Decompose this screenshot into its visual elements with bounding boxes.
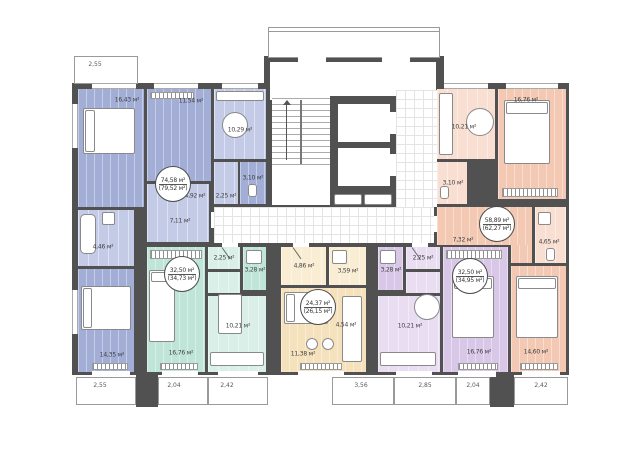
room-area-label: 3,28 м²: [381, 267, 402, 274]
room-area-label: 7,32 м²: [453, 237, 474, 244]
balcony-pillar: [136, 375, 158, 407]
window: [72, 290, 78, 334]
balcony-door: [458, 371, 496, 377]
washing-machine: [538, 212, 551, 225]
apt-purple-total-badge[interactable]: 32,50 м² (34,95 м²): [452, 258, 488, 294]
apt-green-door: [222, 243, 238, 247]
room-area-label: 10,21 м²: [398, 323, 422, 330]
room-area-label: 11,38 м²: [291, 351, 315, 358]
porch-railing: [269, 31, 439, 32]
area-gross: (34,95 м²): [456, 276, 485, 284]
shower: [332, 250, 347, 264]
stool: [306, 338, 318, 350]
washing-machine: [102, 212, 115, 225]
room-area-label: 10,29 м²: [228, 127, 252, 134]
apt-purple-door: [412, 243, 428, 247]
room-area-label: 2,25 м²: [413, 255, 434, 262]
bed-pillow: [518, 278, 556, 289]
balcony-door: [396, 371, 432, 377]
room-area-label: 7,11 м²: [170, 218, 191, 225]
lobby-door: [364, 194, 392, 205]
area-net: 58,89 м²: [485, 217, 509, 224]
dimension-label: 2,42: [534, 382, 547, 389]
room-area-label: 3,10 м²: [243, 175, 264, 182]
radiator: [300, 363, 342, 370]
stair-landing: [272, 166, 330, 205]
kitchen-counter: [216, 91, 264, 101]
balcony-door: [162, 371, 198, 377]
balcony-door: [92, 371, 130, 377]
room-area-label: 4,65 м²: [539, 239, 560, 246]
toilet: [248, 184, 257, 197]
apt-salmon-door: [434, 216, 437, 232]
apt-cream-door: [293, 243, 309, 247]
balcony-door: [522, 371, 560, 377]
apt-blue-door: [211, 212, 214, 228]
toilet: [440, 186, 449, 199]
area-net: 32,50 м²: [170, 267, 194, 274]
area-gross: (26,15 м²): [304, 307, 333, 315]
radiator: [160, 363, 198, 370]
wardrobe: [502, 188, 558, 197]
room-area-label: 3,28 м²: [245, 267, 266, 274]
balcony-bottom-2: [158, 377, 208, 405]
room-area-label: 3,10 м²: [443, 180, 464, 187]
room-area-label: 14,35 м²: [100, 352, 124, 359]
room-area-label: 10,21 м²: [226, 323, 250, 330]
room-area-label: 4,86 м²: [294, 263, 315, 270]
bed-pillow: [85, 110, 95, 152]
room-area-label: 16,76 м²: [169, 350, 193, 357]
elevator-2: [338, 148, 390, 186]
kitchen-counter: [380, 352, 436, 366]
room-area-label: 4,46 м²: [93, 244, 114, 251]
entrance-porch: [268, 27, 440, 58]
balcony-top-left: [74, 56, 138, 84]
apt-blue-bathroom-small[interactable]: [240, 162, 266, 204]
area-net: 24,37 м²: [306, 300, 330, 307]
bed-pillow: [506, 102, 548, 114]
window: [222, 83, 258, 89]
window: [154, 83, 198, 89]
dimension-label: 2,04: [167, 382, 180, 389]
shower: [246, 250, 262, 264]
dimension-label: 2,42: [220, 382, 233, 389]
dimension-label: 3,56: [354, 382, 367, 389]
area-gross: (79,52 м²): [159, 184, 188, 192]
shower: [380, 250, 396, 264]
corridor-horizontal: [214, 207, 434, 243]
room-area-label: 10,21 м²: [452, 124, 476, 131]
room-area-label: 4,54 м²: [336, 322, 357, 329]
entrance-door: [298, 56, 326, 62]
apt-salmon-hall[interactable]: [511, 245, 532, 263]
dining-table: [466, 108, 494, 136]
stair-divider: [300, 100, 302, 164]
area-net: 32,50 м²: [458, 269, 482, 276]
balcony-door: [298, 371, 344, 377]
stair-arrow: [286, 104, 287, 160]
apt-green-kitchen[interactable]: [208, 272, 240, 293]
room-area-label: 16,76 м²: [514, 97, 538, 104]
toilet: [546, 248, 555, 261]
apt-green-total-badge[interactable]: 32,50 м² (34,73 м²): [164, 256, 200, 292]
balcony-pillar: [490, 375, 514, 407]
kitchen-counter: [210, 352, 264, 366]
bed-pillow: [286, 294, 295, 322]
radiator: [520, 363, 558, 370]
apt-salmon-total-badge[interactable]: 58,89 м² (62,27 м²): [479, 206, 515, 242]
room-area-label: 16,43 м²: [115, 97, 139, 104]
dimension-label: 2,04: [466, 382, 479, 389]
balcony-door: [218, 371, 258, 377]
dining-table: [414, 294, 440, 320]
floor-plan: 16,43 м² 11,54 м² 10,29 м² 3,10 м² 2,25 …: [0, 0, 644, 470]
apt-purple-kitchen[interactable]: [406, 272, 440, 293]
room-area-label: 3,59 м²: [338, 268, 359, 275]
dimension-label: 2,55: [93, 382, 106, 389]
lobby-door: [334, 194, 362, 205]
balcony-bottom-3: [208, 377, 268, 405]
apt-cream-total-badge[interactable]: 24,37 м² (26,15 м²): [300, 289, 336, 325]
elevator-1: [338, 104, 390, 142]
stool: [322, 338, 334, 350]
radiator: [92, 363, 128, 370]
room-area-label: 14,60 м²: [524, 349, 548, 356]
area-gross: (34,73 м²): [168, 274, 197, 282]
room-area-label: 2,25 м²: [214, 255, 235, 262]
radiator: [458, 363, 498, 370]
area-net: 74,58 м²: [161, 177, 185, 184]
stair-arrow-head: [283, 100, 291, 105]
window: [506, 83, 558, 89]
area-gross: (62,27 м²): [483, 224, 512, 232]
apt-blue-total-badge[interactable]: 74,58 м² (79,52 м²): [155, 166, 191, 202]
dimension-label: 2,85: [418, 382, 431, 389]
dining-table: [222, 112, 248, 138]
bed-pillow: [83, 288, 92, 328]
room-area-label: 11,54 м²: [179, 98, 203, 105]
dimension-label: 2,55: [88, 61, 101, 68]
kitchen-counter: [342, 296, 362, 362]
room-area-label: 2,25 м²: [216, 193, 237, 200]
window: [72, 104, 78, 148]
entrance-door: [382, 56, 410, 62]
corridor-vertical: [396, 90, 437, 207]
window: [92, 83, 136, 89]
window: [444, 83, 488, 89]
room-area-label: 16,76 м²: [467, 349, 491, 356]
